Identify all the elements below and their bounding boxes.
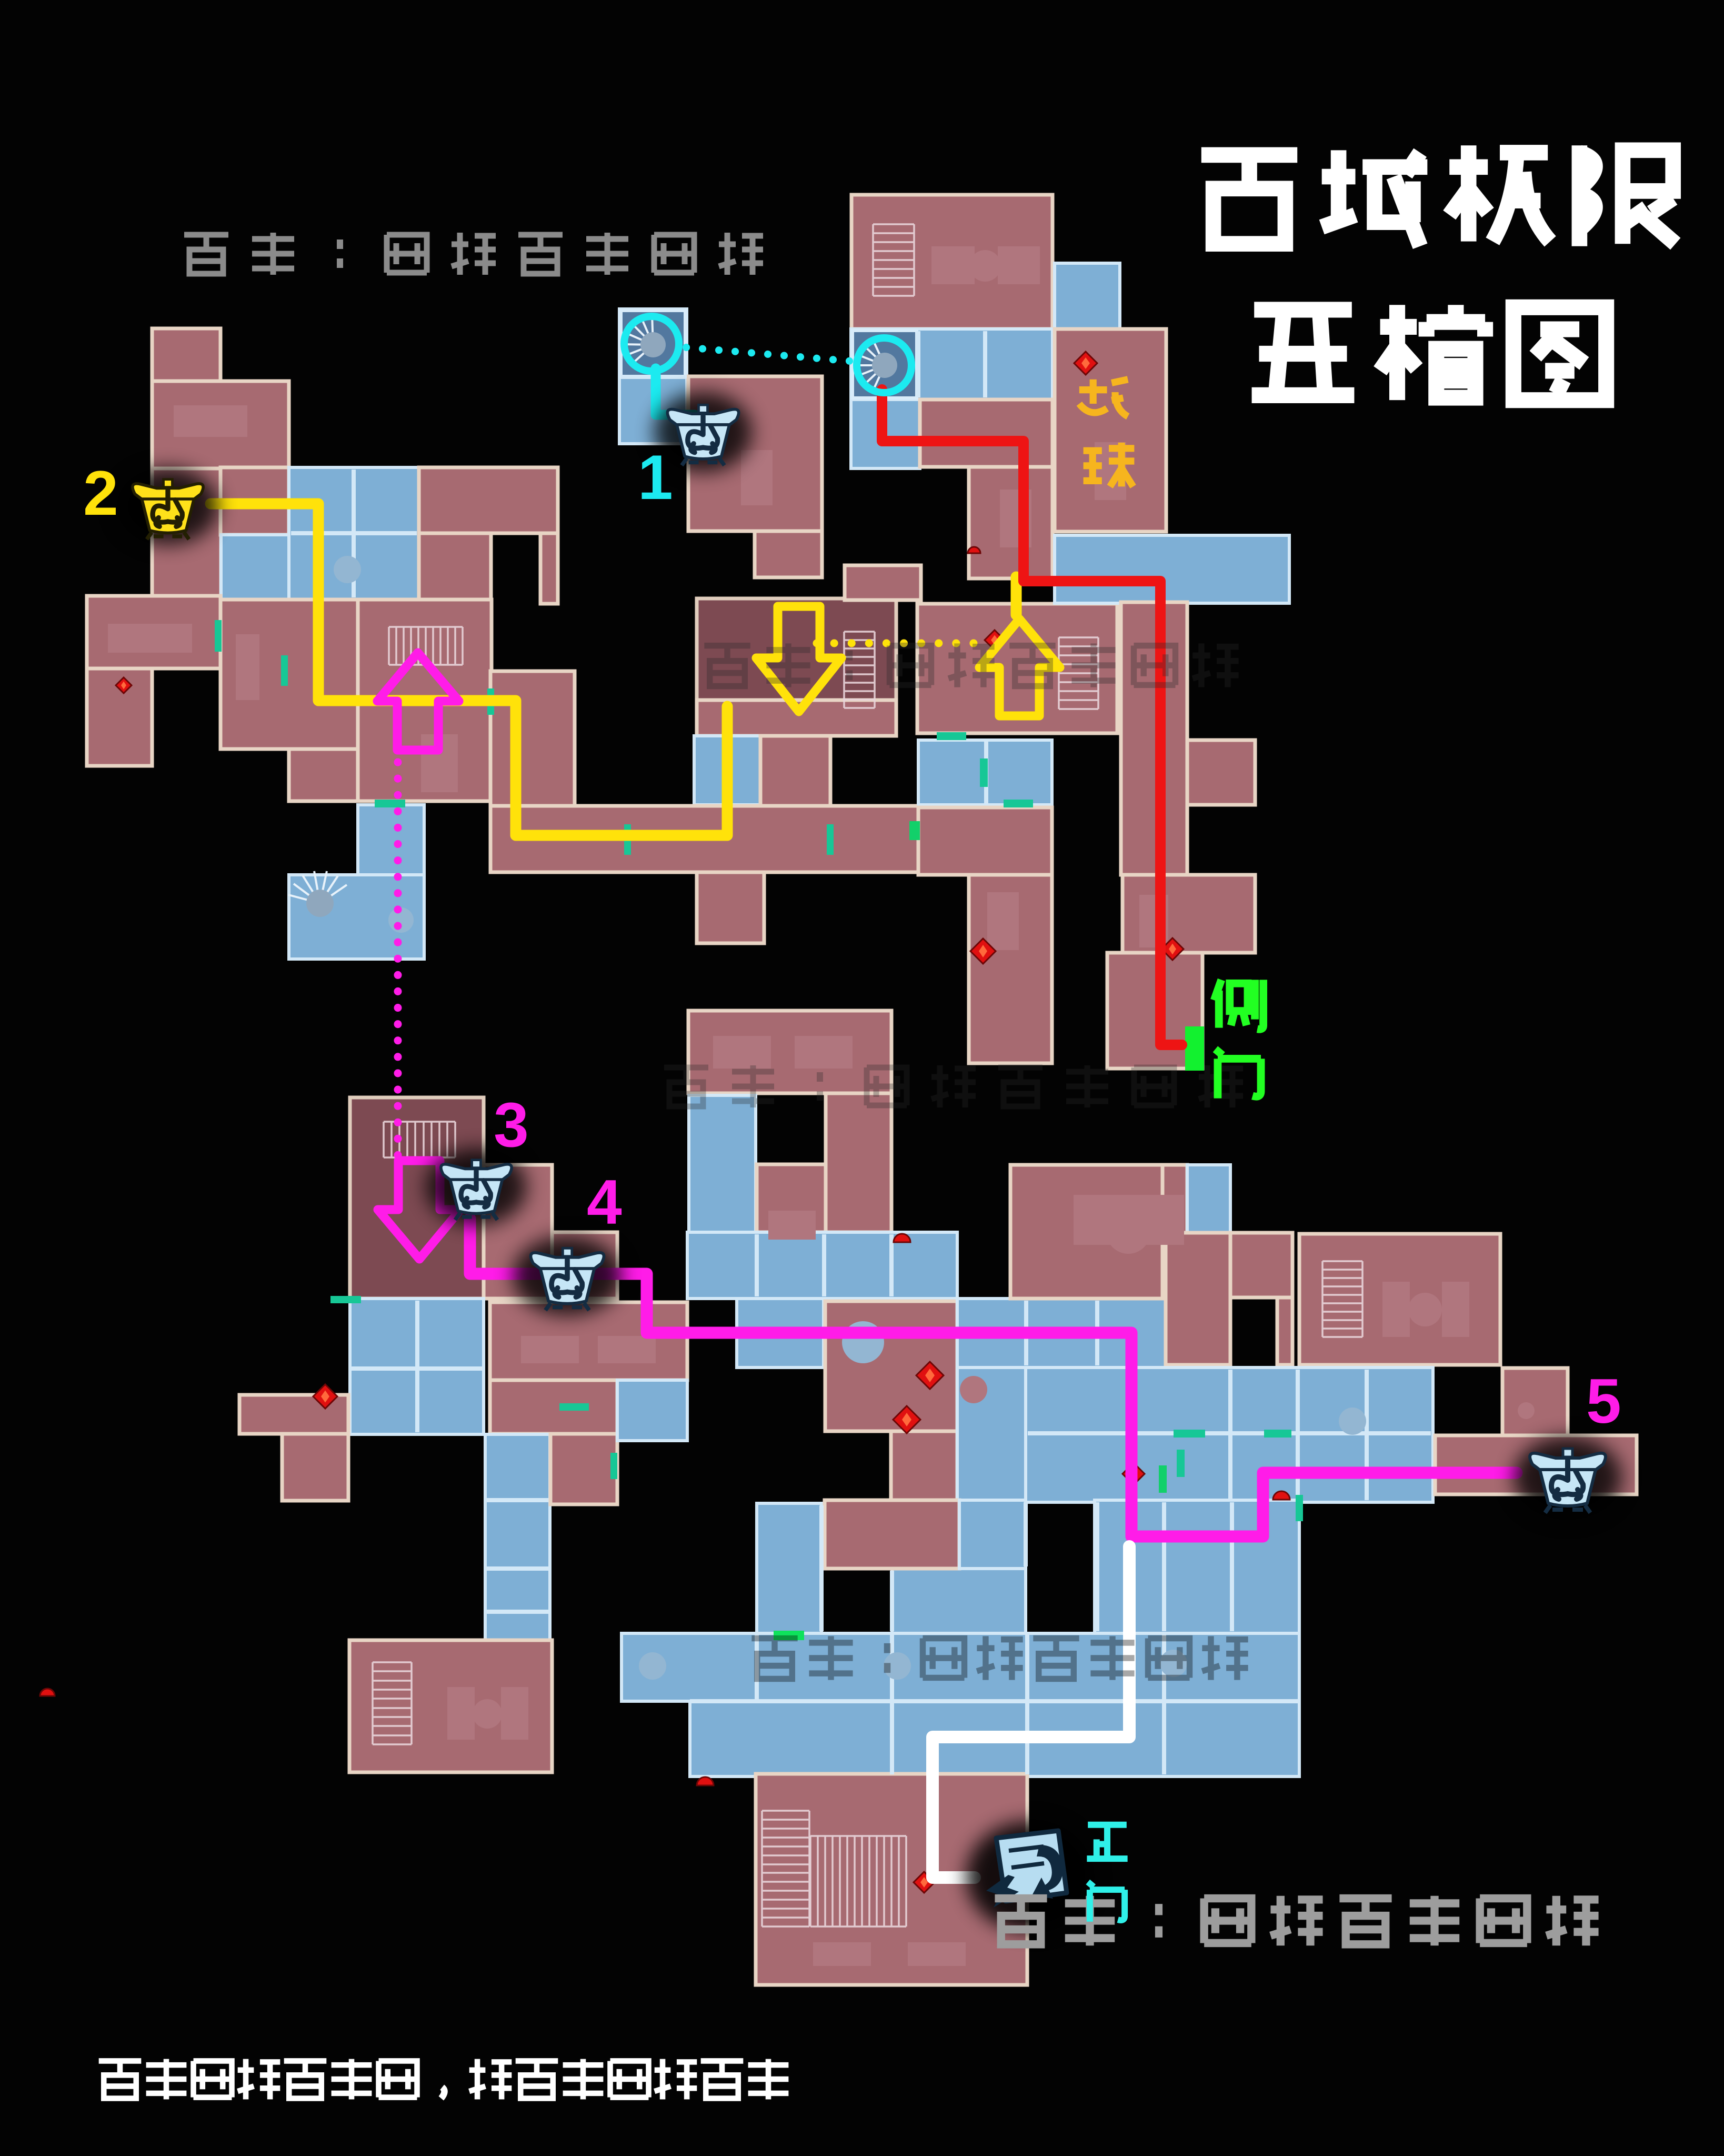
svg-text:5: 5 — [1586, 1366, 1621, 1436]
svg-text:2: 2 — [83, 458, 118, 528]
svg-text:3: 3 — [494, 1090, 529, 1160]
svg-text:1: 1 — [638, 442, 673, 513]
svg-text:4: 4 — [587, 1167, 622, 1237]
